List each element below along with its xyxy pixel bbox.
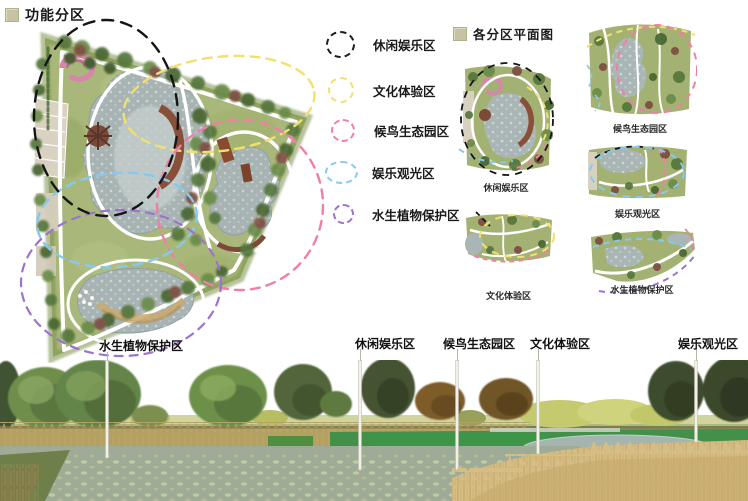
legend-item-bird: 候鸟生态园区: [331, 119, 449, 142]
zone-plans-title: 各分区平面图: [453, 24, 554, 43]
bird-zone-swatch-icon: [331, 119, 355, 142]
culture-zone-swatch-icon: [328, 77, 354, 103]
legend-item-culture: 文化体验区: [328, 77, 436, 103]
thumbnail-sightseeing-plan: [585, 142, 690, 202]
brown-shrub: [479, 378, 533, 420]
thumbnail-caption: 水生植物保护区: [587, 283, 697, 296]
zone-plans-title-text: 各分区平面图: [473, 24, 554, 43]
legend-label: 候鸟生态园区: [374, 121, 449, 140]
thumbnail-culture-plan: [462, 210, 555, 268]
legend-label: 文化体验区: [373, 81, 436, 100]
master-plan-illustration: [10, 8, 330, 363]
presentation-board: { "page": { "background": "#ffffff" }, "…: [0, 0, 748, 501]
section-label-bird: 候鸟生态园区: [443, 335, 515, 352]
leisure-zone-swatch-icon: [326, 31, 355, 58]
thumbnail-bird-plan: [583, 17, 697, 118]
section-label-sightseeing: 娱乐观光区: [678, 335, 738, 352]
master-plan-zone-label: 水生植物保护区: [99, 337, 183, 354]
legend-label: 水生植物保护区: [372, 205, 460, 224]
legend-item-aquatic: 水生植物保护区: [333, 204, 460, 224]
thumbnail-leisure-plan: [455, 57, 557, 179]
dark-tree: [703, 360, 748, 422]
legend-label: 娱乐观光区: [372, 163, 435, 182]
section-label-leisure: 休闲娱乐区: [355, 335, 415, 352]
dark-tree: [361, 360, 415, 418]
thumbnail-caption: 文化体验区: [462, 289, 555, 302]
thumbnail-caption: 娱乐观光区: [585, 207, 690, 220]
section-label-culture: 文化体验区: [530, 335, 590, 352]
panorama-section-view: [0, 360, 748, 501]
legend-item-leisure: 休闲娱乐区: [326, 31, 436, 58]
legend-item-sightseeing: 娱乐观光区: [325, 161, 435, 184]
thumbnail-caption: 休闲娱乐区: [455, 181, 557, 194]
legend-label: 休闲娱乐区: [373, 35, 436, 54]
thumbnail-caption: 候鸟生态园区: [583, 122, 697, 135]
title-square-icon: [453, 27, 467, 41]
aquatic-zone-swatch-icon: [333, 204, 354, 224]
